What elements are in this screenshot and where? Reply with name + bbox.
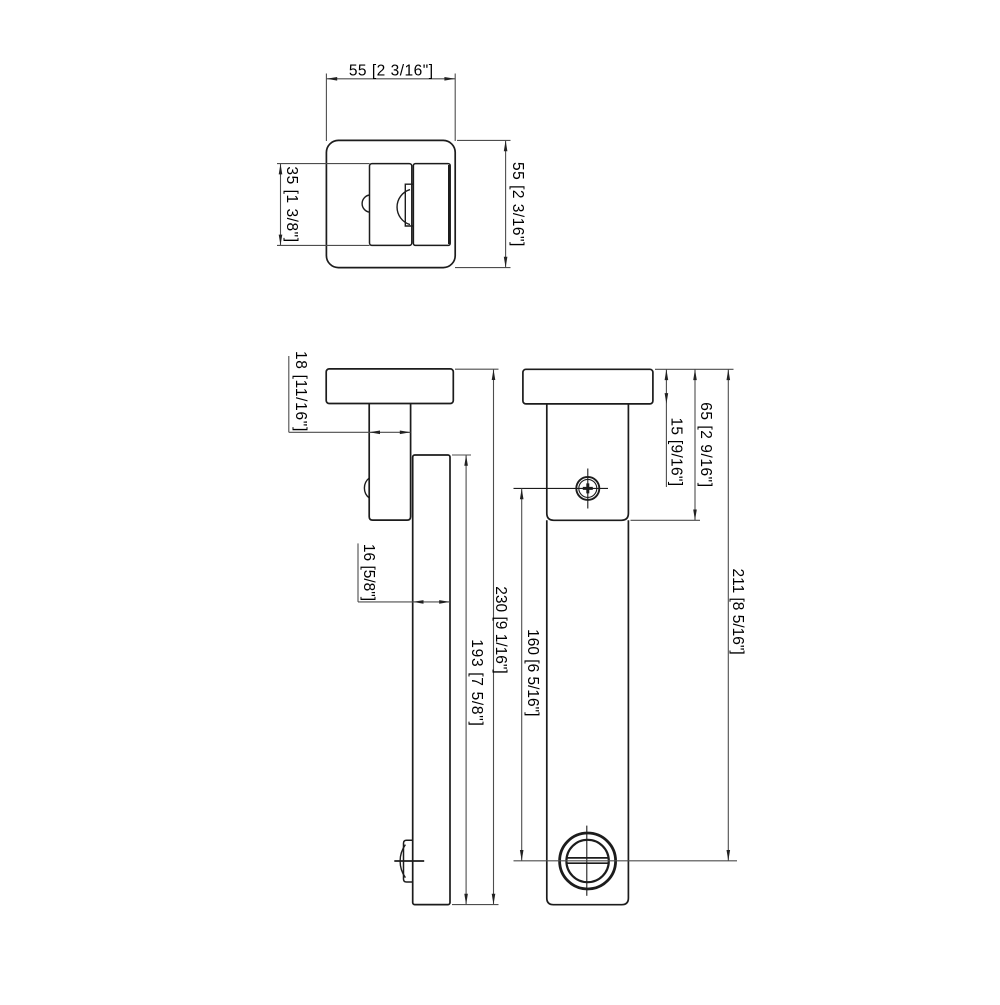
svg-text:35 [1 3/8"]: 35 [1 3/8"] — [283, 166, 300, 242]
svg-text:193 [7 5/8"]: 193 [7 5/8"] — [468, 639, 485, 726]
svg-text:160 [6 5/16"]: 160 [6 5/16"] — [524, 629, 541, 716]
svg-text:230 [9 1/16"]: 230 [9 1/16"] — [492, 586, 509, 673]
svg-text:55 [2 3/16"]: 55 [2 3/16"] — [509, 162, 526, 247]
svg-text:55 [2 3/16"]: 55 [2 3/16"] — [349, 63, 434, 80]
svg-text:16 [5/8"]: 16 [5/8"] — [360, 544, 377, 601]
svg-text:65 [2 9/16"]: 65 [2 9/16"] — [697, 402, 714, 487]
svg-text:15 [9/16"]: 15 [9/16"] — [667, 417, 684, 486]
svg-text:211 [8 5/16"]: 211 [8 5/16"] — [729, 568, 746, 654]
svg-text:18 [11/16"]: 18 [11/16"] — [292, 351, 309, 432]
